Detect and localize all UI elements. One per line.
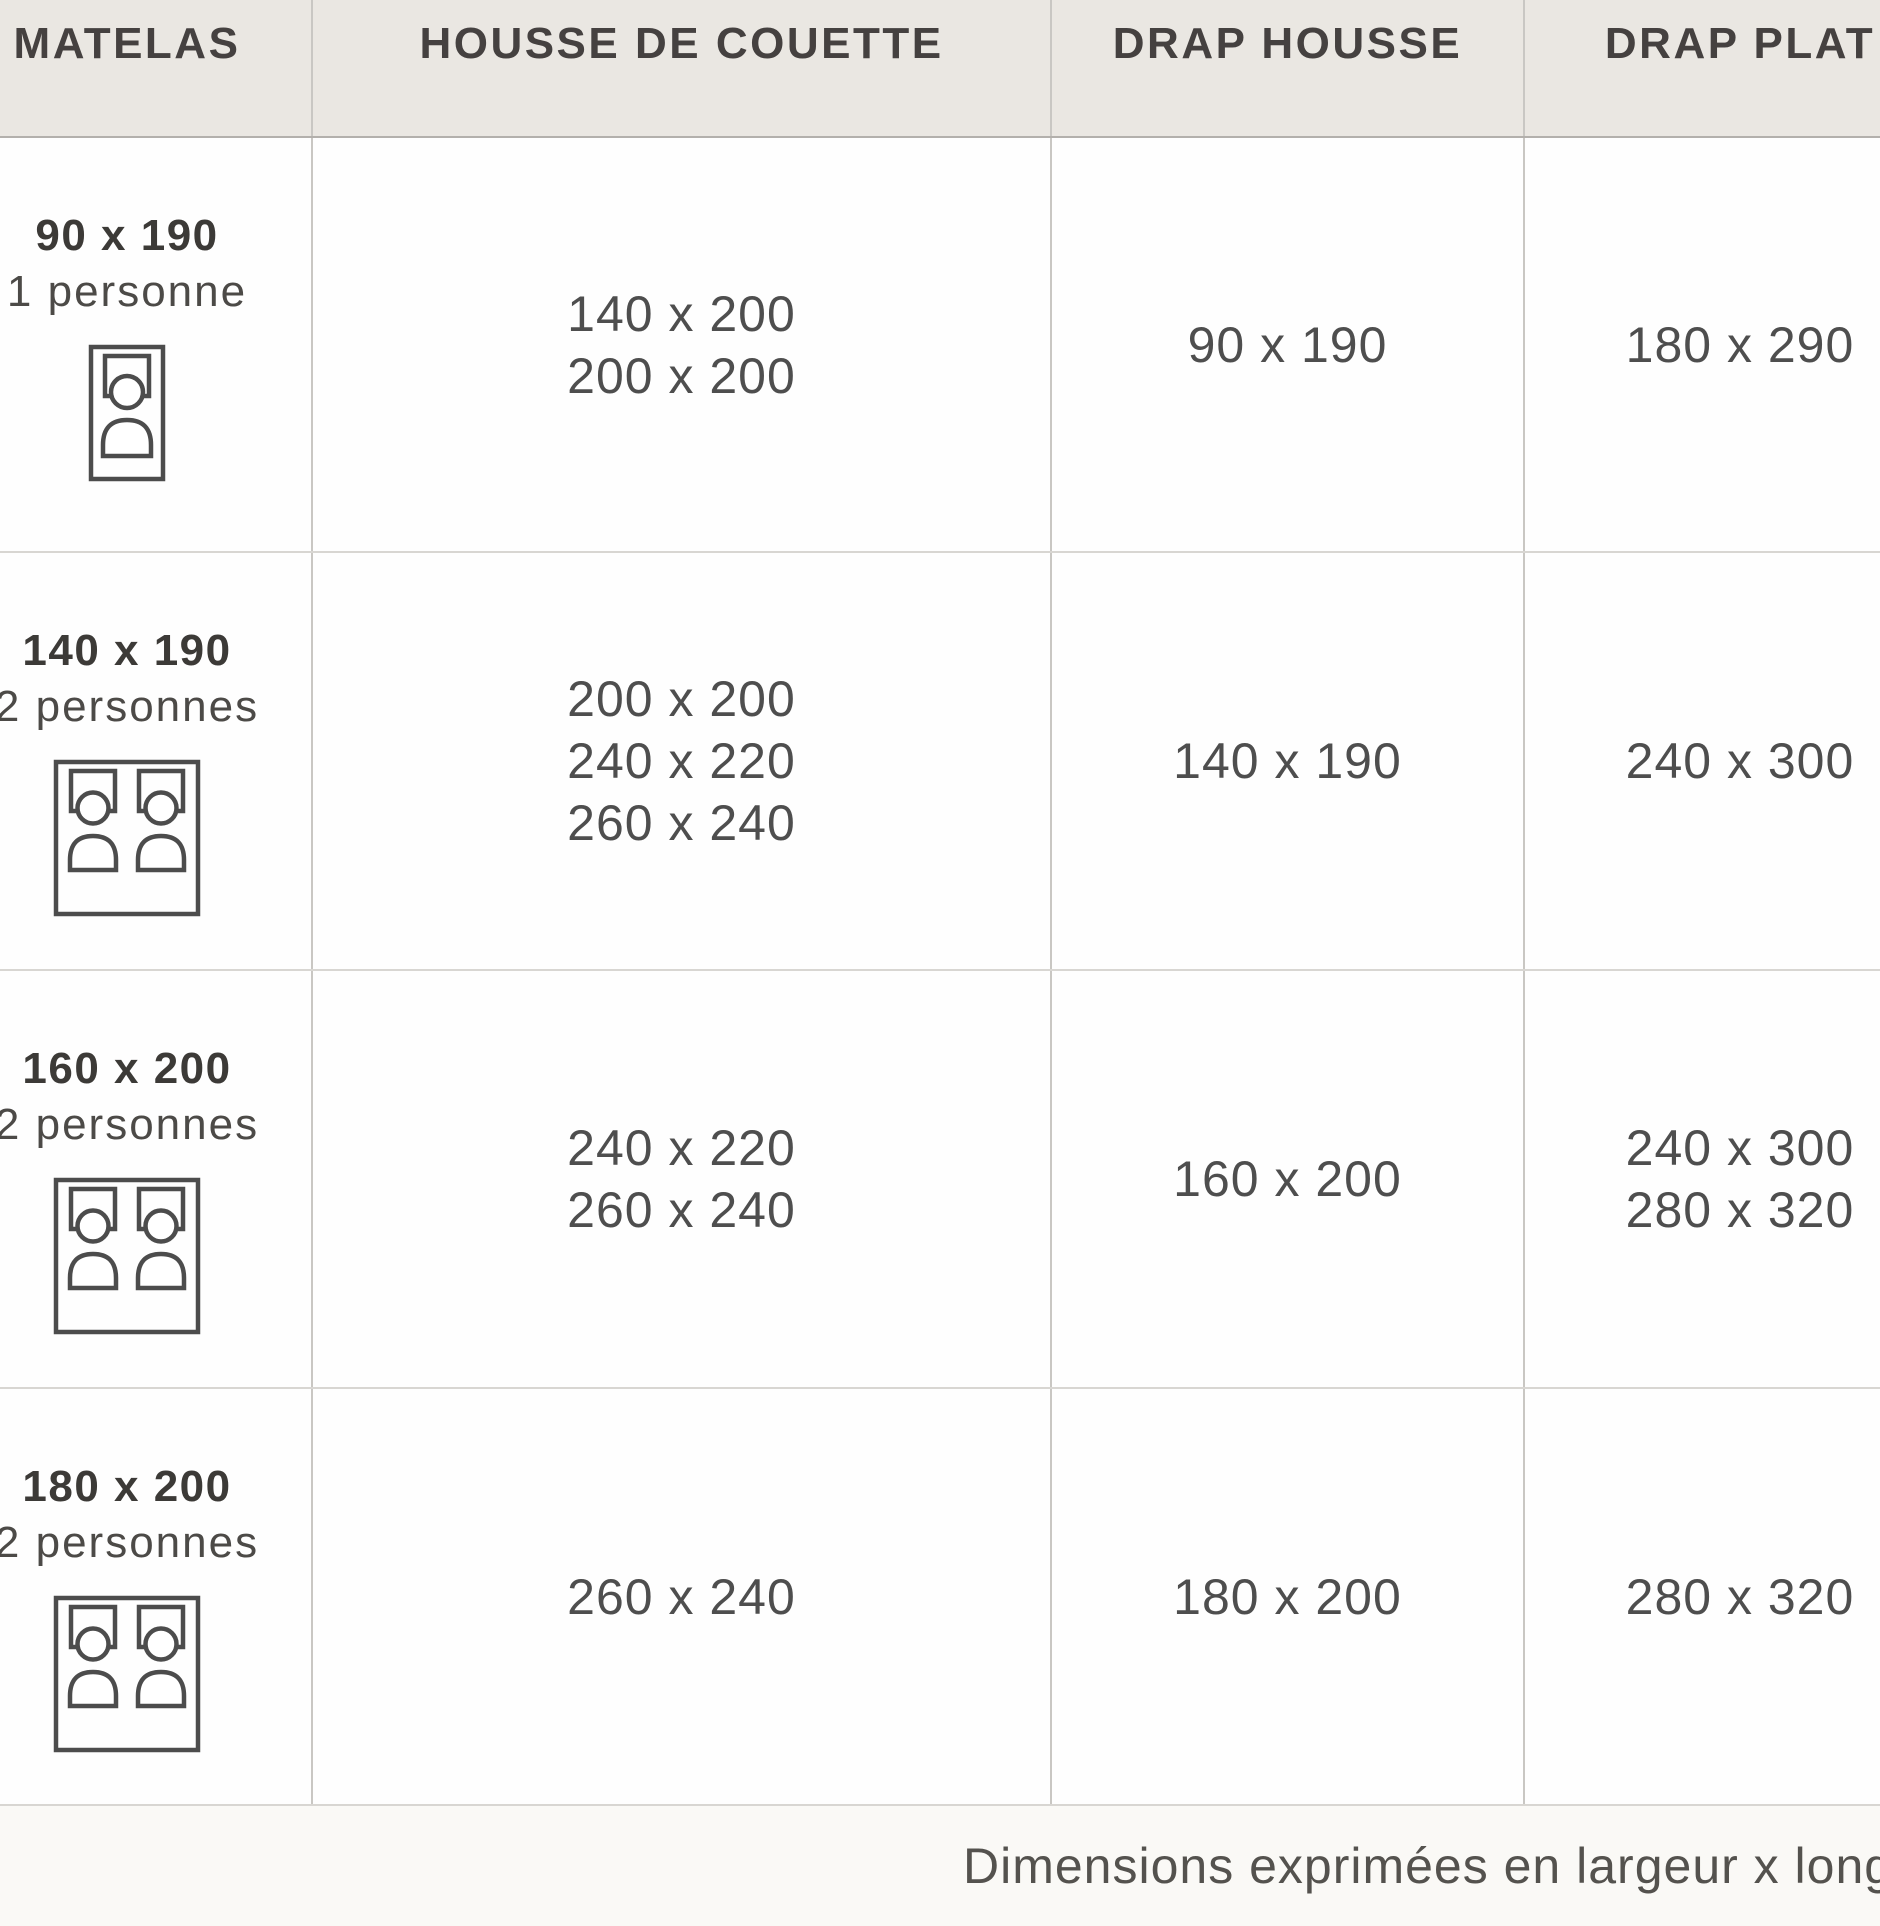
- column-header-housse-de-couette: HOUSSE DE COUETTE: [313, 0, 1052, 136]
- table-footer: Dimensions exprimées en largeur x longue…: [0, 1806, 1880, 1926]
- drap-housse-cell: 140 x 190: [1052, 553, 1525, 969]
- drap-plat-cell: 240 x 300: [1525, 553, 1880, 969]
- table-row: 160 x 200 2 personnes 240 x 220 260 x 24…: [0, 971, 1880, 1389]
- mattress-size-label: 180 x 200: [22, 1459, 231, 1515]
- capacity-label: 2 personnes: [0, 1097, 259, 1153]
- column-header-matelas: MATELAS: [0, 0, 313, 136]
- column-header-drap-plat: DRAP PLAT: [1525, 0, 1880, 136]
- housse-de-couette-cell: 200 x 200 240 x 220 260 x 240: [313, 553, 1052, 969]
- drap-plat-cell: 240 x 300 280 x 320: [1525, 971, 1880, 1387]
- matelas-cell: 180 x 200 2 personnes: [0, 1389, 313, 1804]
- drap-plat-cell: 280 x 320: [1525, 1389, 1880, 1804]
- housse-de-couette-cell: 260 x 240: [313, 1389, 1052, 1804]
- drap-housse-cell: 180 x 200: [1052, 1389, 1525, 1804]
- matelas-cell: 90 x 190 1 personne: [0, 138, 313, 551]
- double-sleeper-bed-icon: [53, 759, 201, 917]
- capacity-label: 2 personnes: [0, 1515, 259, 1571]
- single-sleeper-bed-icon: [88, 344, 166, 482]
- mattress-size-label: 140 x 190: [22, 623, 231, 679]
- matelas-cell: 160 x 200 2 personnes: [0, 971, 313, 1387]
- housse-de-couette-cell: 240 x 220 260 x 240: [313, 971, 1052, 1387]
- table-row: 90 x 190 1 personne 140 x 200 200 x 200 …: [0, 138, 1880, 553]
- double-sleeper-bed-icon: [53, 1595, 201, 1753]
- drap-housse-cell: 90 x 190: [1052, 138, 1525, 551]
- capacity-label: 2 personnes: [0, 679, 259, 735]
- mattress-size-label: 90 x 190: [35, 208, 218, 264]
- drap-plat-cell: 180 x 290: [1525, 138, 1880, 551]
- housse-de-couette-cell: 140 x 200 200 x 200: [313, 138, 1052, 551]
- double-sleeper-bed-icon: [53, 1177, 201, 1335]
- table-row: 140 x 190 2 personnes 200 x 200 240 x 22…: [0, 553, 1880, 971]
- dimensions-note: Dimensions exprimées en largeur x longue…: [963, 1836, 1880, 1896]
- mattress-size-label: 160 x 200: [22, 1041, 231, 1097]
- drap-housse-cell: 160 x 200: [1052, 971, 1525, 1387]
- capacity-label: 1 personne: [7, 264, 247, 320]
- bed-linen-size-guide-table: MATELAS HOUSSE DE COUETTE DRAP HOUSSE DR…: [0, 0, 1880, 1806]
- column-header-drap-housse: DRAP HOUSSE: [1052, 0, 1525, 136]
- matelas-cell: 140 x 190 2 personnes: [0, 553, 313, 969]
- table-row: 180 x 200 2 personnes 260 x 240 180 x 20…: [0, 1389, 1880, 1806]
- table-header-row: MATELAS HOUSSE DE COUETTE DRAP HOUSSE DR…: [0, 0, 1880, 138]
